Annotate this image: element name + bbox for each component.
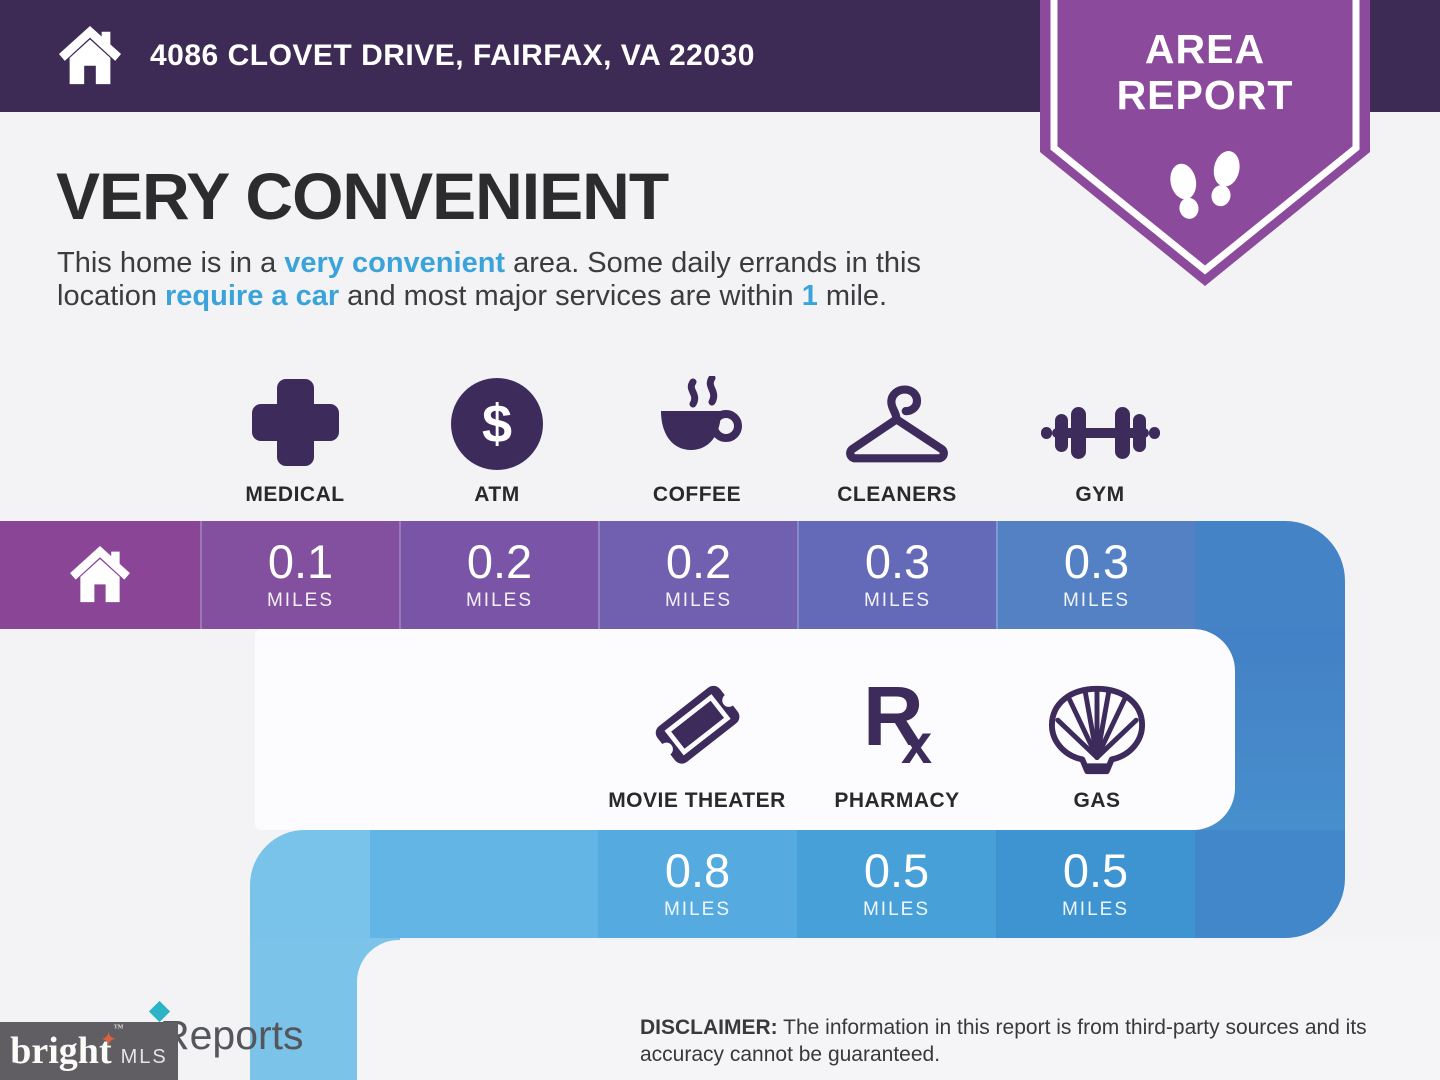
distance-unit: MILES	[863, 899, 930, 921]
home-icon	[58, 20, 122, 92]
distance-unit: MILES	[665, 590, 732, 612]
poi-label: ATM	[407, 483, 587, 507]
path-corner-segment	[1195, 521, 1345, 629]
summary-text: This home is in a	[57, 247, 284, 279]
hanger-icon	[838, 382, 956, 470]
mls-label: MLS	[121, 1046, 168, 1069]
distance-segment: 0.8 MILES	[598, 830, 797, 938]
disclaimer-label: DISCLAIMER:	[640, 1016, 778, 1039]
ticket-icon	[641, 672, 753, 776]
summary-highlight-mile: 1	[802, 280, 818, 312]
summary-highlight-car: require a car	[165, 280, 339, 312]
disclaimer: DISCLAIMER: The information in this repo…	[640, 1014, 1420, 1068]
poi-medical: MEDICAL	[205, 374, 385, 507]
distance-value: 0.2	[666, 538, 731, 585]
page-title: VERY CONVENIENT	[56, 158, 668, 234]
medical-cross-icon	[248, 375, 343, 470]
trademark-symbol: ™	[114, 1024, 124, 1034]
poi-coffee: COFFEE	[607, 374, 787, 507]
summary-text: location	[57, 280, 165, 312]
coffee-cup-icon	[649, 376, 745, 470]
area-report-badge: AREA REPORT	[1040, 0, 1370, 292]
shell-icon	[1048, 684, 1146, 776]
distance-segment: 0.5 MILES	[996, 830, 1195, 938]
footprints-icon	[1158, 140, 1253, 232]
rx-icon: R x	[851, 680, 943, 776]
distance-value: 0.2	[467, 538, 532, 585]
distance-segment: 0.2 MILES	[399, 521, 598, 629]
distance-segment: 0.3 MILES	[996, 521, 1195, 629]
poi-label: GYM	[1010, 483, 1190, 507]
distance-segment: 0.5 MILES	[797, 830, 996, 938]
badge-title-line1: AREA	[1040, 26, 1370, 73]
distance-unit: MILES	[864, 590, 931, 612]
distance-value: 0.3	[1064, 538, 1129, 585]
summary-highlight-convenient: very convenient	[284, 247, 505, 279]
bright-wordmark: bright	[10, 1030, 111, 1072]
badge-title-line2: REPORT	[1040, 72, 1370, 119]
home-icon	[69, 546, 131, 604]
summary-text: mile.	[818, 280, 887, 312]
poi-label: GAS	[992, 789, 1202, 813]
home-segment	[0, 521, 200, 629]
distance-segment: 0.2 MILES	[598, 521, 797, 629]
area-report-page: 4086 CLOVET DRIVE, FAIRFAX, VA 22030 ARE…	[0, 0, 1440, 1080]
distance-unit: MILES	[1063, 590, 1130, 612]
poi-label: MEDICAL	[205, 483, 385, 507]
distance-value: 0.3	[865, 538, 930, 585]
distance-segment: 0.3 MILES	[797, 521, 996, 629]
distance-unit: MILES	[466, 590, 533, 612]
poi-gas: GAS	[992, 680, 1202, 813]
atm-dollar-icon: $	[451, 378, 543, 470]
bright-mls-logo: bright ✦ ™ MLS	[0, 1022, 178, 1080]
poi-label: CLEANERS	[807, 483, 987, 507]
dumbbell-icon	[1038, 396, 1163, 470]
poi-cleaners: CLEANERS	[807, 374, 987, 507]
bright-logo-text: bright ✦ ™	[10, 1032, 111, 1070]
poi-label: MOVIE THEATER	[592, 789, 802, 813]
poi-atm: $ ATM	[407, 374, 587, 507]
poi-label: COFFEE	[607, 483, 787, 507]
summary-text: area. Some daily errands in this	[505, 247, 921, 279]
distance-segment: 0.1 MILES	[200, 521, 399, 629]
poi-pharmacy: R x PHARMACY	[792, 680, 1002, 813]
poi-gym: GYM	[1010, 374, 1190, 507]
distance-value: 0.5	[1063, 847, 1128, 894]
distance-bar-top: 0.1 MILES 0.2 MILES 0.2 MILES 0.3 MILES …	[0, 521, 1345, 629]
path-lead-segment	[250, 830, 370, 938]
path-corner-segment	[1195, 830, 1345, 938]
distance-unit: MILES	[267, 590, 334, 612]
distance-unit: MILES	[1062, 899, 1129, 921]
distance-unit: MILES	[664, 899, 731, 921]
rx-letter-x: x	[901, 716, 932, 772]
distance-value: 0.1	[268, 538, 333, 585]
poi-movie-theater: MOVIE THEATER	[592, 680, 802, 813]
distance-value: 0.8	[665, 847, 730, 894]
poi-label: PHARMACY	[792, 789, 1002, 813]
summary-paragraph: This home is in a very convenient area. …	[57, 247, 1027, 313]
reports-watermark-text: Reports	[160, 1012, 304, 1059]
property-address: 4086 CLOVET DRIVE, FAIRFAX, VA 22030	[150, 39, 755, 73]
summary-text: and most major services are within	[339, 280, 802, 312]
dollar-symbol: $	[482, 393, 512, 455]
path-lead-segment	[370, 830, 598, 938]
distance-bar-bottom: 0.8 MILES 0.5 MILES 0.5 MILES	[250, 830, 1345, 938]
distance-value: 0.5	[864, 847, 929, 894]
